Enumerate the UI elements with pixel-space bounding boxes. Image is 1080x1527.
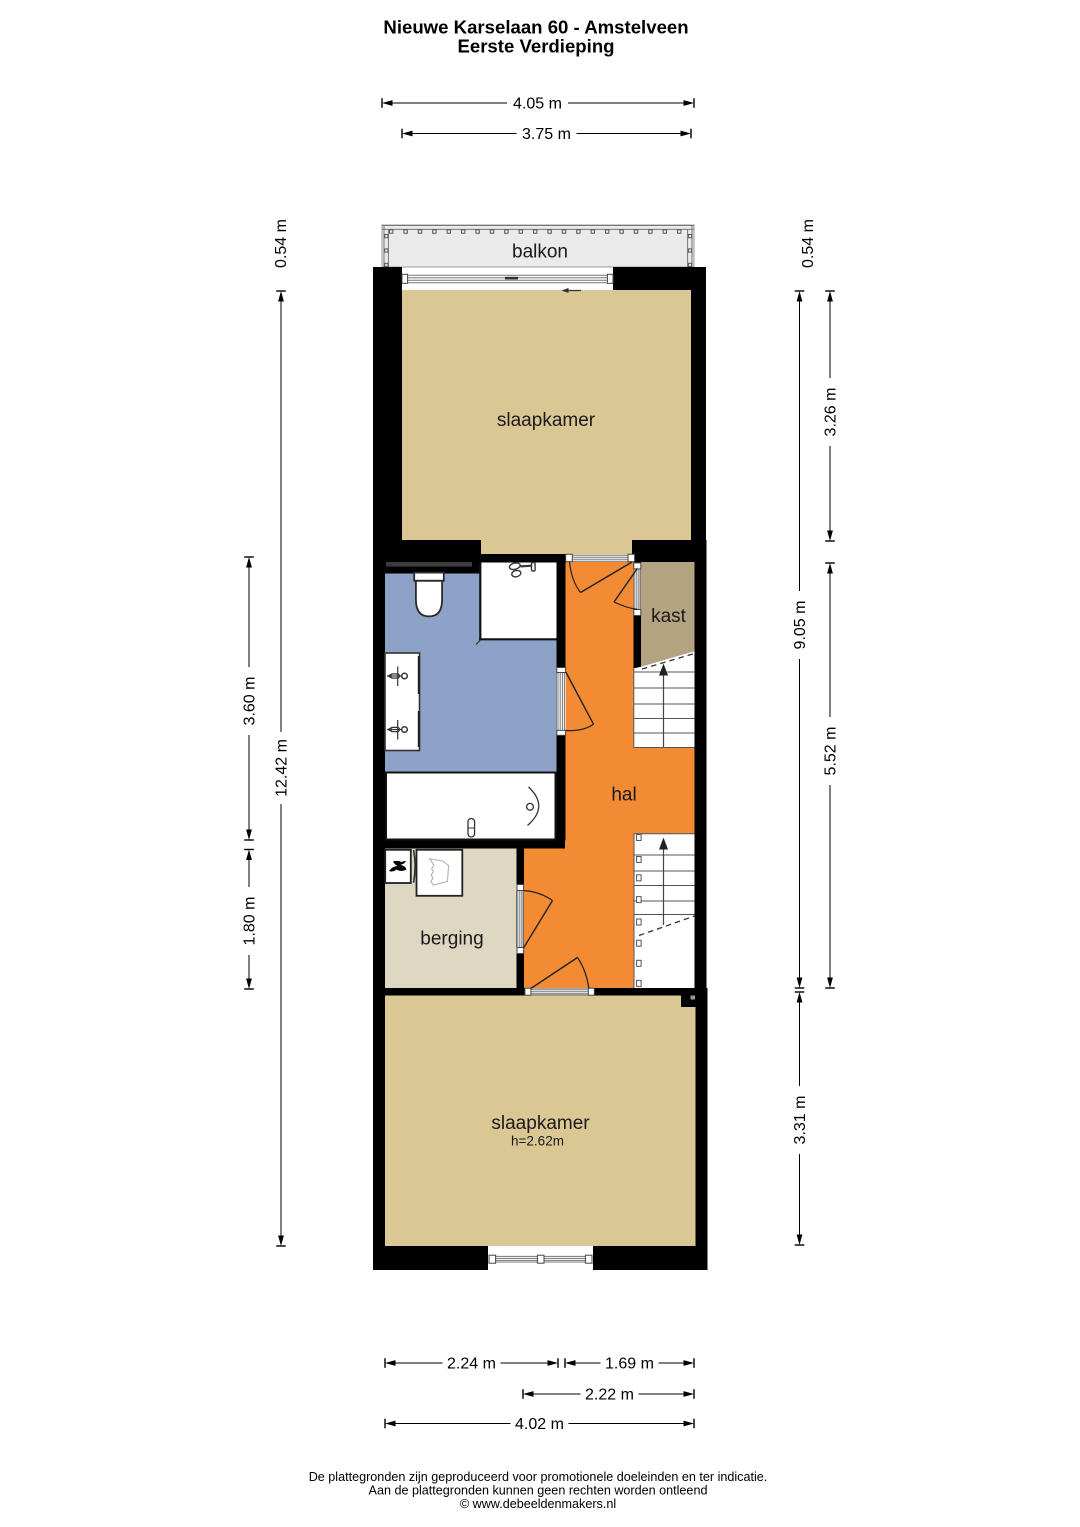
svg-text:hal: hal	[611, 785, 636, 806]
svg-text:3.26 m: 3.26 m	[822, 388, 839, 437]
svg-text:4.05 m: 4.05 m	[513, 96, 562, 113]
svg-text:berging: berging	[420, 929, 483, 950]
svg-text:2.24 m: 2.24 m	[447, 1356, 496, 1373]
svg-text:3.60 m: 3.60 m	[241, 677, 258, 726]
svg-text:2.22 m: 2.22 m	[585, 1387, 634, 1404]
svg-text:0.54 m: 0.54 m	[800, 219, 817, 268]
svg-text:Eerste Verdieping: Eerste Verdieping	[457, 36, 614, 57]
svg-text:Nieuwe Karselaan 60 - Amstelve: Nieuwe Karselaan 60 - Amstelveen	[383, 17, 688, 38]
svg-text:4.02 m: 4.02 m	[515, 1416, 564, 1433]
svg-text:0.54 m: 0.54 m	[273, 219, 290, 268]
svg-text:12.42 m: 12.42 m	[273, 739, 290, 797]
svg-text:3.75 m: 3.75 m	[522, 126, 571, 143]
svg-text:1.69 m: 1.69 m	[605, 1356, 654, 1373]
svg-text:1.80 m: 1.80 m	[241, 897, 258, 946]
svg-text:h=2.62m: h=2.62m	[511, 1134, 564, 1149]
svg-text:9.05 m: 9.05 m	[792, 601, 809, 650]
svg-text:kast: kast	[651, 606, 687, 627]
svg-text:De plattegronden zijn geproduc: De plattegronden zijn geproduceerd voor …	[309, 1470, 768, 1484]
svg-text:slaapkamer: slaapkamer	[491, 1113, 590, 1134]
svg-text:3.31 m: 3.31 m	[792, 1096, 809, 1145]
svg-text:© www.debeeldenmakers.nl: © www.debeeldenmakers.nl	[460, 1497, 616, 1511]
svg-text:balkon: balkon	[512, 241, 568, 262]
svg-text:slaapkamer: slaapkamer	[497, 410, 596, 431]
svg-text:5.52 m: 5.52 m	[822, 727, 839, 776]
svg-text:Aan de plattegronden kunnen ge: Aan de plattegronden kunnen geen rechten…	[369, 1484, 708, 1498]
